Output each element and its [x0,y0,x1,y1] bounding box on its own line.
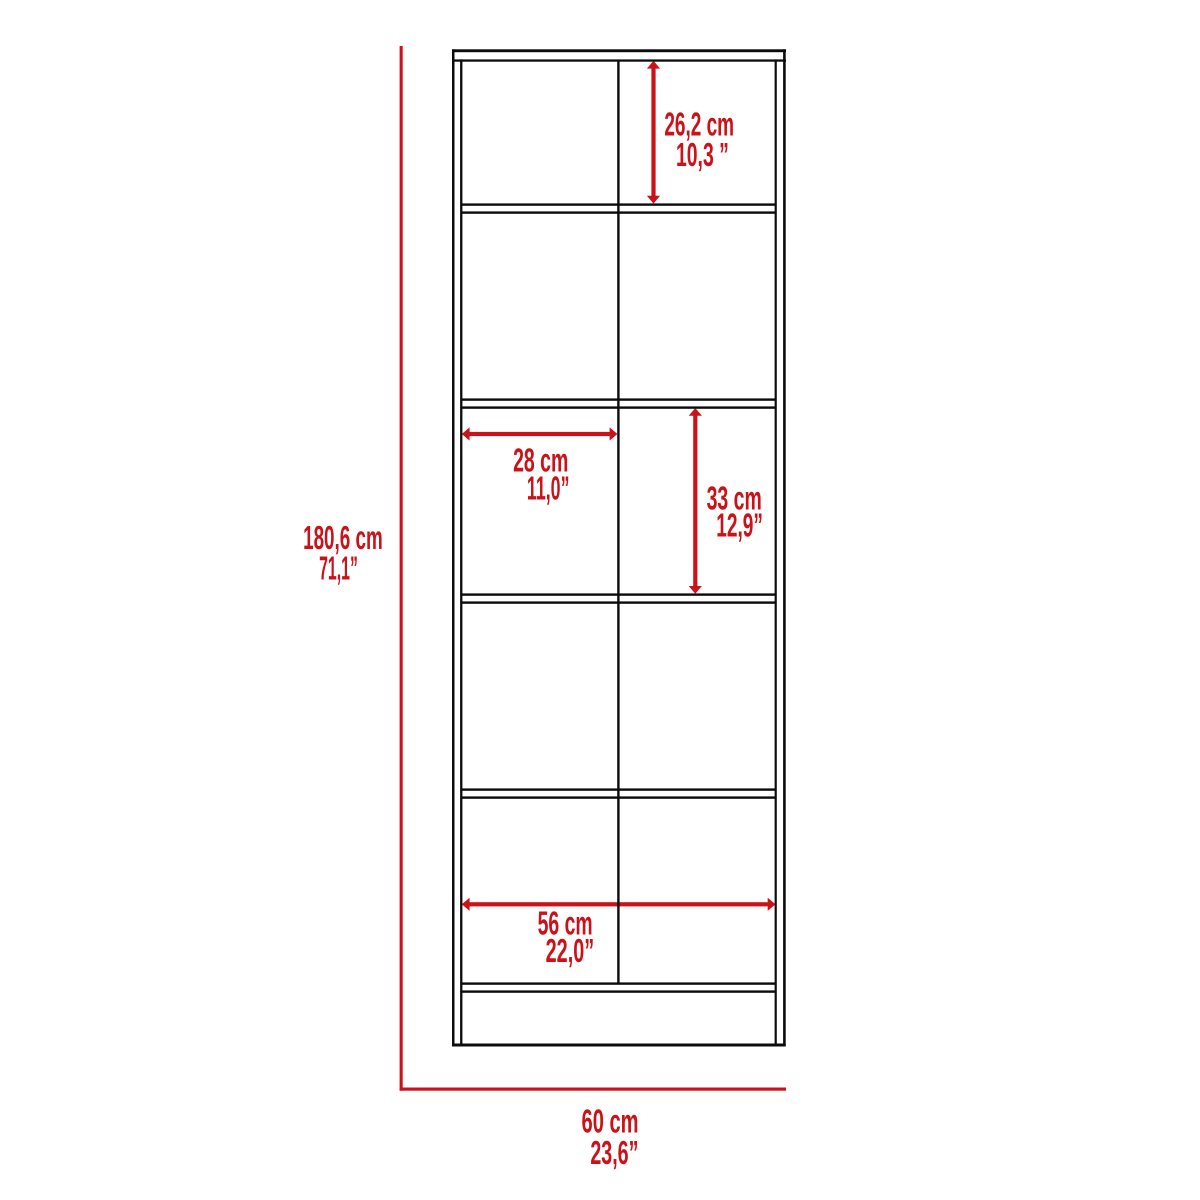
svg-text:71,1”: 71,1” [319,551,358,587]
svg-text:22,0”: 22,0” [546,932,595,970]
svg-text:12,9”: 12,9” [716,507,763,544]
svg-text:11,0”: 11,0” [527,470,570,507]
svg-text:23,6”: 23,6” [590,1134,638,1172]
svg-text:10,3 ”: 10,3 ” [676,137,729,174]
